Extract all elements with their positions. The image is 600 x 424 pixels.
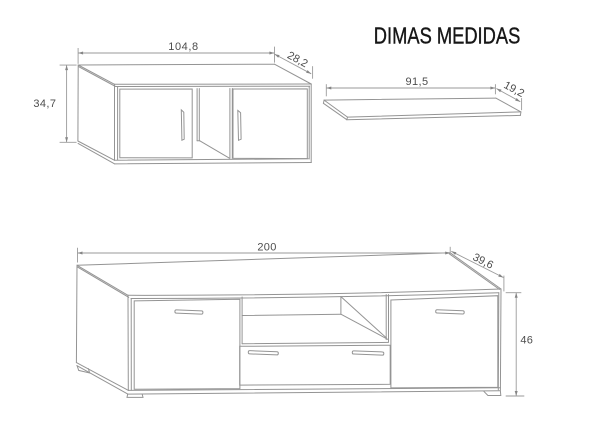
svg-text:DIMAS MEDIDAS: DIMAS MEDIDAS [374,23,521,49]
svg-text:91,5: 91,5 [405,76,428,88]
svg-text:34,7: 34,7 [33,98,56,110]
svg-text:104,8: 104,8 [168,41,199,53]
svg-text:46: 46 [520,335,533,347]
svg-text:200: 200 [257,241,276,253]
